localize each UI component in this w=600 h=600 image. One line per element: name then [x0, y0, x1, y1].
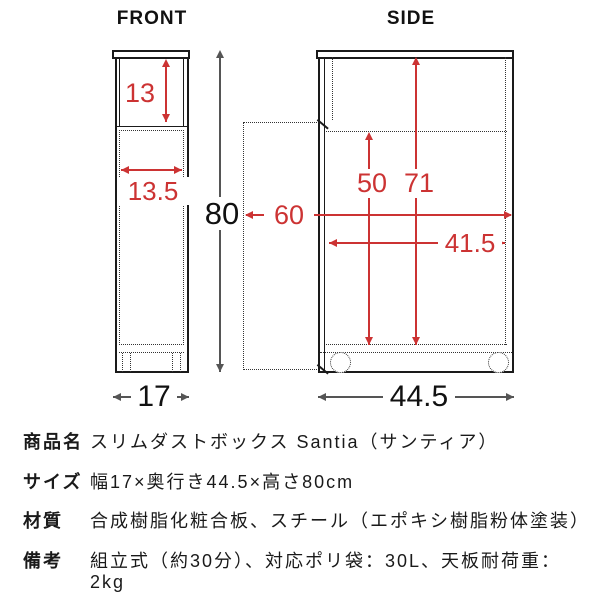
- arrowhead-down-icon: [162, 114, 170, 122]
- spec-label: 商品名: [23, 432, 90, 453]
- arrowhead-left-icon: [113, 393, 121, 401]
- arrowhead-down-icon: [412, 337, 420, 345]
- arrowhead-left-icon: [329, 239, 337, 247]
- arrowhead-left-icon: [121, 166, 129, 174]
- front-inner-dotted-area: [119, 130, 184, 345]
- spec-row-material: 材質 合成樹脂化粧合板、スチール（エポキシ樹脂粉体塗装）: [23, 511, 583, 532]
- dim-label-side-depth-door-open: 60: [264, 201, 314, 230]
- arrowhead-up-icon: [412, 57, 420, 65]
- dim-label-side-full-inner-height: 71: [398, 169, 440, 198]
- caster-wheel-icon: [488, 352, 509, 373]
- dim-label-front-inner-width: 13.5: [117, 177, 189, 205]
- front-caster-leg-line: [180, 353, 181, 372]
- front-base-dotted-line: [119, 352, 184, 353]
- arrowhead-right-icon: [174, 166, 182, 174]
- spec-value: 合成樹脂化粧合板、スチール（エポキシ樹脂粉体塗装）: [90, 511, 583, 532]
- spec-row-notes: 備考 組立式（約30分）、対応ポリ袋：30L、天板耐荷重：2kg: [23, 551, 583, 592]
- front-caster-leg-line: [130, 353, 131, 372]
- dim-line-front-top-height: [165, 61, 167, 122]
- spec-label: サイズ: [23, 472, 90, 493]
- caster-wheel-icon: [330, 352, 351, 373]
- front-shelf-divider: [115, 126, 189, 127]
- front-view-title: FRONT: [107, 8, 197, 30]
- spec-value: 幅17×奥行き44.5×高さ80cm: [90, 472, 583, 493]
- side-base-dotted-line: [320, 352, 512, 353]
- arrowhead-down-icon: [216, 364, 224, 372]
- front-inner-left-wall: [119, 57, 120, 127]
- dim-label-overall-height: 80: [200, 197, 244, 230]
- arrowhead-left-icon: [245, 211, 253, 219]
- arrowhead-left-icon: [318, 393, 326, 401]
- dim-line-side-full-inner-height: [415, 59, 417, 345]
- front-caster-leg-line: [172, 353, 173, 372]
- arrowhead-up-icon: [216, 50, 224, 58]
- dim-label-overall-depth: 44.5: [383, 381, 455, 413]
- side-open-door-outline: [243, 122, 319, 370]
- spec-table: 商品名 スリムダストボックス Santia（サンティア） サイズ 幅17×奥行き…: [23, 432, 583, 600]
- dim-line-side-lower-inner-height: [368, 134, 370, 345]
- side-front-dotted-line: [332, 57, 333, 120]
- dim-line-front-inner-width: [121, 169, 182, 171]
- front-inner-right-wall: [183, 57, 184, 127]
- product-dimension-sheet: FRONT SIDE 13 13.5 80 17 71: [0, 0, 600, 600]
- spec-label: 材質: [23, 511, 90, 532]
- dim-label-overall-width: 17: [131, 381, 177, 413]
- arrowhead-right-icon: [181, 393, 189, 401]
- spec-value: 組立式（約30分）、対応ポリ袋：30L、天板耐荷重：2kg: [90, 551, 583, 592]
- arrowhead-right-icon: [504, 211, 512, 219]
- arrowhead-down-icon: [365, 337, 373, 345]
- side-view-title: SIDE: [366, 8, 456, 30]
- spec-value: スリムダストボックス Santia（サンティア）: [90, 432, 583, 453]
- arrowhead-right-icon: [506, 393, 514, 401]
- arrowhead-up-icon: [162, 59, 170, 67]
- dim-label-side-inner-depth: 41.5: [438, 229, 502, 257]
- spec-row-product-name: 商品名 スリムダストボックス Santia（サンティア）: [23, 432, 583, 453]
- front-caster-leg-line: [122, 353, 123, 372]
- arrowhead-up-icon: [365, 132, 373, 140]
- dim-label-side-lower-inner-height: 50: [351, 169, 393, 198]
- side-back-dotted-line: [505, 57, 506, 345]
- spec-row-size: サイズ 幅17×奥行き44.5×高さ80cm: [23, 472, 583, 493]
- spec-label: 備考: [23, 551, 90, 572]
- dim-label-front-top-height: 13: [122, 79, 158, 108]
